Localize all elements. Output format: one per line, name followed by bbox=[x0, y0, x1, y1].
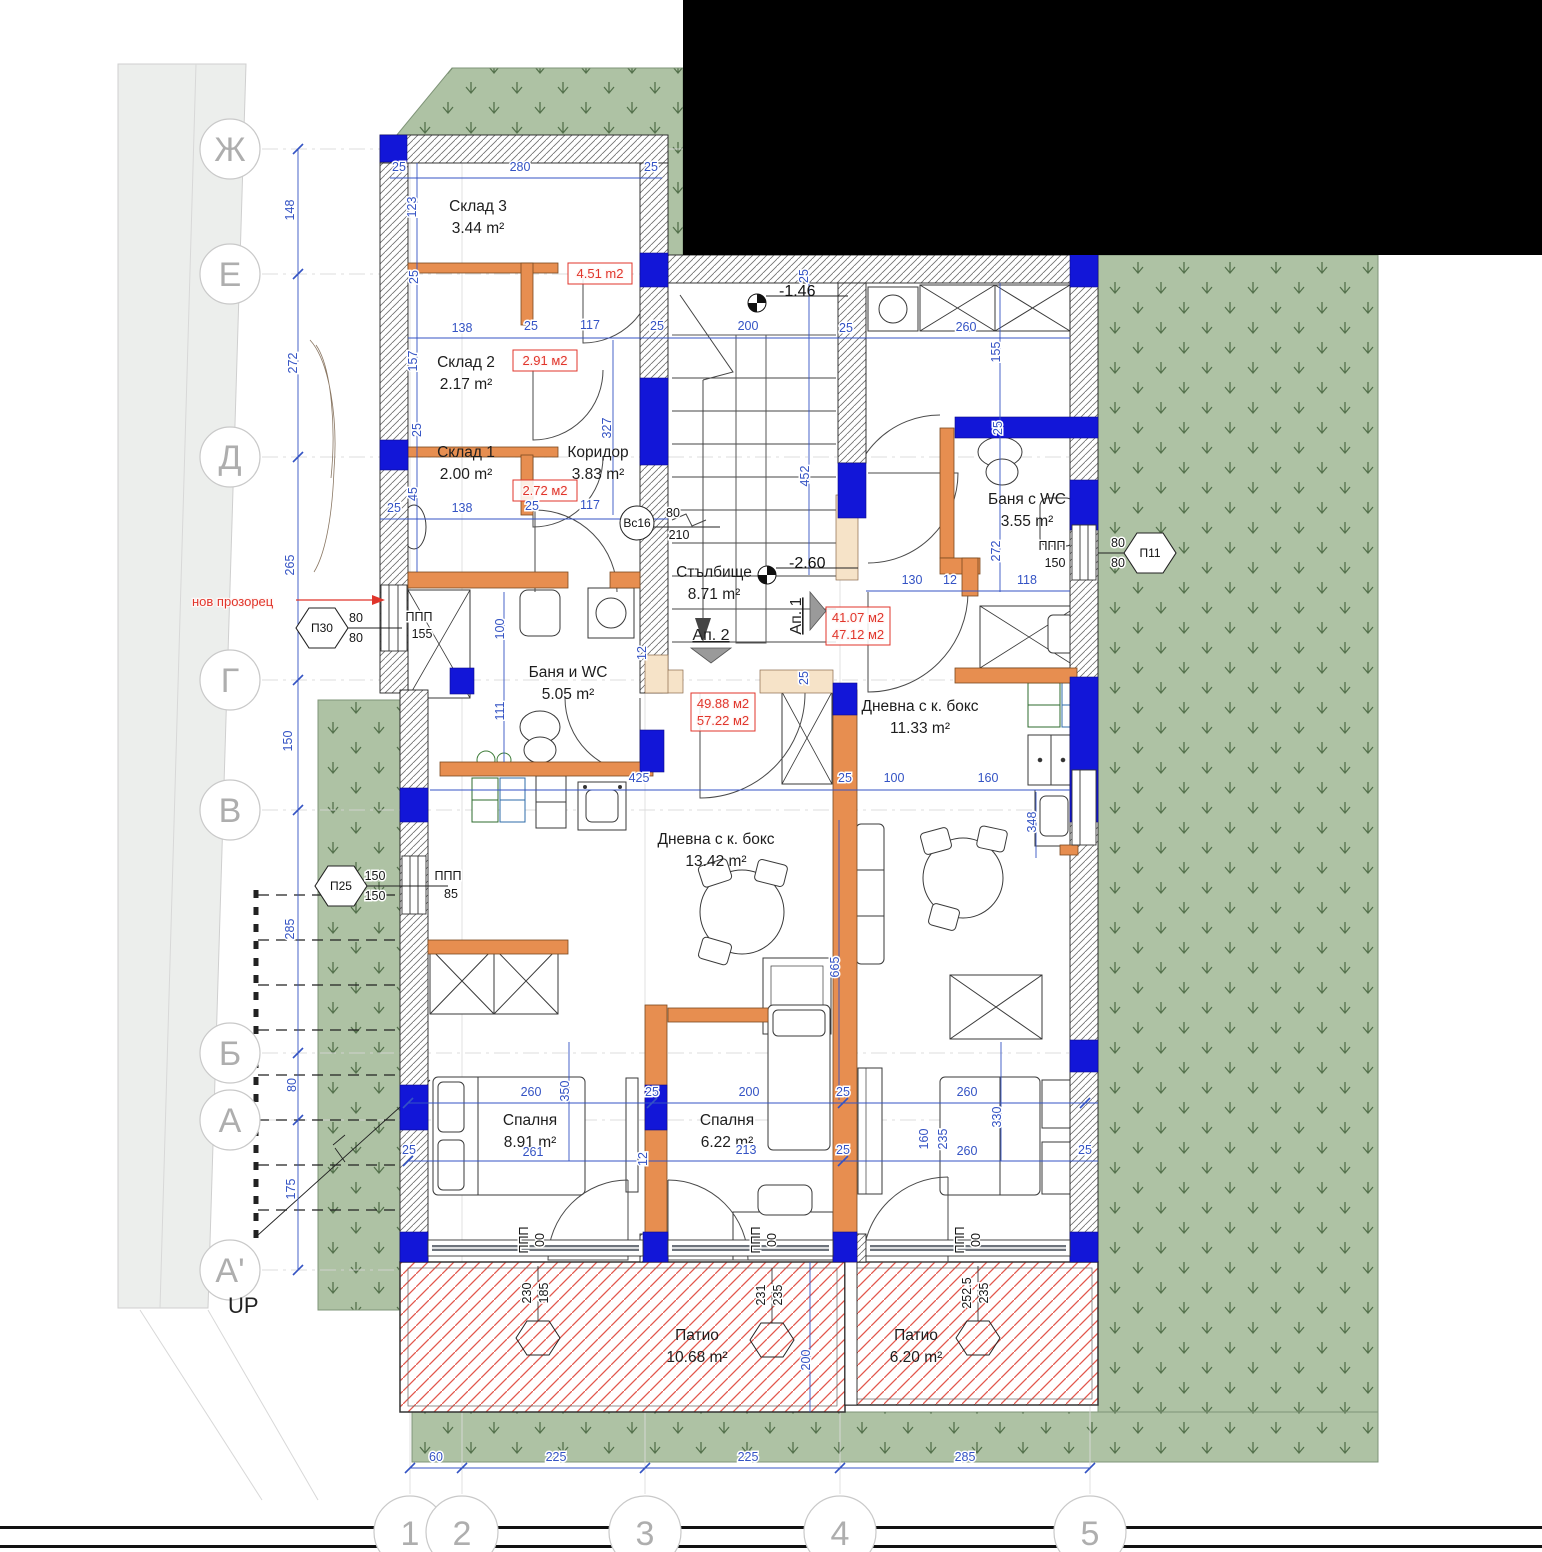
dimension-label: 200 bbox=[739, 1085, 760, 1099]
floor-plan-canvas: нов прозорец Склад 33.44 m²Склад 22.17 m… bbox=[0, 0, 1542, 1552]
dimension-label: 100 bbox=[493, 619, 507, 640]
patio-hex-value: 231 bbox=[754, 1285, 768, 1306]
hex-marker-top-value: 80 bbox=[349, 611, 363, 625]
sofa-right bbox=[856, 824, 884, 964]
red-area-note: 41.07 м2 bbox=[832, 610, 884, 625]
red-area-note: 2.72 м2 bbox=[522, 483, 567, 498]
axis-number: 1 bbox=[401, 1515, 420, 1552]
dimension-label: 111 bbox=[493, 701, 507, 720]
ppp-label: ППП bbox=[517, 1227, 531, 1254]
dimension-label: 665 bbox=[828, 957, 842, 978]
room-label: Дневна с к. бокс bbox=[861, 698, 978, 715]
ppp-label: ППП bbox=[406, 610, 433, 624]
hex-marker-label: П30 bbox=[311, 621, 333, 635]
dimension-label: 175 bbox=[284, 1179, 298, 1200]
patio-hex-value: 230 bbox=[520, 1283, 534, 1304]
dimension-label: 280 bbox=[510, 160, 531, 174]
hex-marker-top-value: 80 bbox=[1111, 536, 1125, 550]
room-area: 11.33 m² bbox=[890, 720, 950, 737]
dimension-label: 285 bbox=[283, 919, 297, 940]
dimension-label: 117 bbox=[580, 498, 600, 512]
ppp-label: ППП bbox=[953, 1227, 967, 1254]
ppp-label: ППП bbox=[749, 1227, 763, 1254]
room-label: Патио bbox=[675, 1327, 719, 1344]
red-area-note: 4.51 m2 bbox=[577, 266, 624, 281]
circle-marker-label: Вс16 bbox=[623, 516, 651, 530]
dimension-label: 25 bbox=[525, 499, 539, 513]
room-label: Дневна с к. бокс bbox=[657, 831, 774, 848]
patio-hex-value: 252.5 bbox=[960, 1277, 974, 1308]
hex-marker-top-value: 150 bbox=[365, 869, 386, 883]
room-label: Стълбище bbox=[676, 564, 752, 581]
dimension-label: 25 bbox=[392, 160, 406, 174]
sink-left bbox=[520, 590, 560, 636]
hex-marker-note: 85 bbox=[444, 887, 458, 901]
elevation-value: -2.60 bbox=[789, 555, 826, 572]
dimension-label: 25 bbox=[836, 1143, 850, 1157]
dimension-label: 330 bbox=[990, 1107, 1004, 1128]
car-outline bbox=[310, 340, 335, 572]
dimension-label: 25 bbox=[410, 423, 424, 437]
circle-marker-bottom: 210 bbox=[669, 528, 690, 542]
dimension-label: 261 bbox=[523, 1145, 544, 1159]
wardrobe-bedroom-left bbox=[430, 948, 558, 1014]
room-area: 2.00 m² bbox=[440, 466, 493, 483]
elevation-value: -1.46 bbox=[779, 283, 816, 300]
room-area: 10.68 m² bbox=[666, 1349, 727, 1366]
dimension-label: 138 bbox=[452, 321, 473, 335]
bed-right bbox=[940, 1077, 1040, 1195]
dimension-label: 25 bbox=[402, 1143, 416, 1157]
axis-letter: Г bbox=[221, 662, 239, 700]
circle-marker-top: 80 bbox=[666, 506, 680, 520]
washing-machine-right bbox=[868, 287, 918, 331]
patio-hex-value: 235 bbox=[771, 1285, 785, 1306]
dimension-label: 260 bbox=[957, 1144, 978, 1158]
dimension-label: 148 bbox=[283, 200, 297, 221]
room-label: Баня с WC bbox=[988, 491, 1066, 508]
red-area-note: 49.88 м2 bbox=[697, 696, 749, 711]
room-label: Коридор bbox=[567, 444, 628, 461]
dimension-label: 117 bbox=[580, 318, 600, 332]
room-label: Спалня bbox=[700, 1112, 754, 1129]
patios bbox=[400, 1262, 1098, 1412]
wardrobe-bedroom-right bbox=[950, 975, 1042, 1039]
grass-right bbox=[1098, 255, 1378, 1462]
hex-marker-bottom-value: 80 bbox=[349, 631, 363, 645]
dimension-label: 155 bbox=[989, 342, 1003, 363]
ppp-label: 150 bbox=[1045, 556, 1066, 570]
dimension-label: 348 bbox=[1025, 812, 1039, 833]
dimension-label: 25 bbox=[644, 160, 658, 174]
axis-letter: Д bbox=[218, 439, 241, 477]
dimension-label: 138 bbox=[452, 501, 473, 515]
up-label: UP bbox=[228, 1293, 259, 1318]
hex-marker-bottom-value: 80 bbox=[1111, 556, 1125, 570]
axis-letter: А' bbox=[215, 1252, 244, 1290]
apartment-label: Ап. 1 bbox=[788, 597, 805, 634]
masked-region bbox=[683, 0, 1542, 255]
room-area: 5.05 m² bbox=[542, 686, 595, 703]
dimension-label: 25 bbox=[991, 421, 1005, 435]
dimension-label: 12 bbox=[943, 573, 957, 587]
dimension-label: 130 bbox=[902, 573, 923, 587]
room-area: 6.20 m² bbox=[890, 1349, 943, 1366]
grass-left bbox=[318, 700, 400, 1310]
dimension-label: 225 bbox=[738, 1450, 759, 1464]
dimension-label: 150 bbox=[281, 731, 295, 752]
closet-right bbox=[858, 1068, 882, 1194]
dimension-label: 25 bbox=[407, 270, 421, 284]
axis-letter: А bbox=[219, 1102, 242, 1140]
new-window-note: нов прозорец bbox=[192, 594, 274, 609]
axis-number: 3 bbox=[636, 1515, 655, 1552]
ppp-label: ППП bbox=[1039, 539, 1066, 553]
dimension-label: 160 bbox=[978, 771, 999, 785]
hex-marker-label: П11 bbox=[1139, 546, 1160, 560]
room-area: 3.44 m² bbox=[452, 220, 505, 237]
axis-number: 2 bbox=[453, 1515, 472, 1552]
dimension-label: 12 bbox=[636, 1152, 650, 1166]
room-label: Баня и WC bbox=[529, 664, 608, 681]
dimension-label: 100 bbox=[884, 771, 905, 785]
dimension-label: 272 bbox=[286, 353, 300, 374]
wardrobe-entry bbox=[782, 692, 832, 784]
dimension-label: 123 bbox=[405, 197, 419, 218]
dimension-label: 235 bbox=[936, 1129, 950, 1150]
washing-machine-left bbox=[588, 588, 634, 638]
dimension-label: 265 bbox=[283, 555, 297, 576]
room-label: Патио bbox=[894, 1327, 938, 1344]
axis-letter: Б bbox=[219, 1035, 241, 1073]
hex-marker-note: ППП bbox=[435, 869, 462, 883]
axis-letter: Ж bbox=[214, 131, 245, 169]
floor-plan-page: нов прозорец Склад 33.44 m²Склад 22.17 m… bbox=[0, 0, 1542, 1552]
dimension-label: 272 bbox=[989, 541, 1003, 562]
room-label: Спалня bbox=[503, 1112, 557, 1129]
dimension-label: 160 bbox=[917, 1129, 931, 1150]
toilet-left bbox=[520, 711, 560, 763]
dimension-label: 260 bbox=[956, 320, 977, 334]
dimension-label: 25 bbox=[1078, 1143, 1092, 1157]
patio-hex-value: 185 bbox=[537, 1283, 551, 1304]
red-area-note: 47.12 м2 bbox=[832, 627, 884, 642]
dimension-label: 25 bbox=[838, 771, 852, 785]
ppp-label: 155 bbox=[412, 627, 433, 641]
dimension-label: 25 bbox=[836, 1085, 850, 1099]
bed-center bbox=[768, 1005, 830, 1150]
room-area: 3.83 m² bbox=[572, 466, 625, 483]
room-label: Склад 3 bbox=[449, 198, 507, 215]
room-area: 8.71 m² bbox=[688, 586, 741, 603]
dimension-label: 25 bbox=[524, 319, 538, 333]
dimension-label: 25 bbox=[387, 501, 401, 515]
dimension-label: 25 bbox=[839, 321, 853, 335]
red-area-note: 2.91 м2 bbox=[522, 353, 567, 368]
street-lines bbox=[0, 1526, 1542, 1548]
ppp-label: 00 bbox=[765, 1233, 779, 1247]
dimension-label: 225 bbox=[546, 1450, 567, 1464]
dimension-label: 60 bbox=[429, 1450, 443, 1464]
axis-number: 4 bbox=[831, 1515, 850, 1552]
ppp-label: 00 bbox=[533, 1233, 547, 1247]
chair bbox=[758, 1185, 812, 1215]
dimension-label: 25 bbox=[645, 1085, 659, 1099]
closet-panel bbox=[626, 1078, 638, 1192]
dimension-label: 12 bbox=[635, 646, 649, 660]
dimension-label: 118 bbox=[1017, 573, 1037, 587]
dimension-label: 213 bbox=[736, 1143, 757, 1157]
room-area: 13.42 m² bbox=[685, 853, 746, 870]
axis-letter: Е bbox=[219, 256, 242, 294]
hex-marker-label: П25 bbox=[330, 879, 352, 893]
shower-right bbox=[980, 606, 1078, 668]
dimension-label: 200 bbox=[738, 319, 759, 333]
dimension-label: 45 bbox=[406, 487, 420, 501]
room-label: Склад 1 bbox=[437, 444, 495, 461]
dimension-label: 25 bbox=[650, 319, 664, 333]
dimension-label: 285 bbox=[955, 1450, 976, 1464]
red-area-note: 57.22 м2 bbox=[697, 713, 749, 728]
dimension-label: 25 bbox=[797, 269, 811, 283]
wardrobe-top-right bbox=[920, 285, 1070, 331]
dimension-label: 157 bbox=[406, 351, 420, 372]
axis-number: 5 bbox=[1081, 1515, 1100, 1552]
dimension-label: 200 bbox=[799, 1350, 813, 1371]
patio-hex-value: 235 bbox=[977, 1283, 991, 1304]
dimension-label: 260 bbox=[957, 1085, 978, 1099]
dimension-label: 452 bbox=[798, 466, 812, 487]
dimension-label: 425 bbox=[629, 771, 650, 785]
patio-left bbox=[400, 1262, 845, 1412]
room-area: 3.55 m² bbox=[1001, 513, 1054, 530]
room-area: 2.17 m² bbox=[440, 376, 493, 393]
hex-marker-bottom-value: 150 bbox=[365, 889, 386, 903]
dimension-label: 260 bbox=[521, 1085, 542, 1099]
new-window-arrow: нов прозорец bbox=[192, 594, 385, 609]
ppp-label: 00 bbox=[969, 1233, 983, 1247]
dimension-label: 327 bbox=[600, 418, 614, 439]
kitchen-left bbox=[472, 776, 626, 830]
apartment-label: Ап. 2 bbox=[692, 627, 729, 644]
dimension-label: 80 bbox=[285, 1078, 299, 1092]
axis-letter: В bbox=[219, 792, 242, 830]
dimension-label: 25 bbox=[797, 671, 811, 685]
room-label: Склад 2 bbox=[437, 354, 495, 371]
dimension-label: 350 bbox=[558, 1081, 572, 1102]
